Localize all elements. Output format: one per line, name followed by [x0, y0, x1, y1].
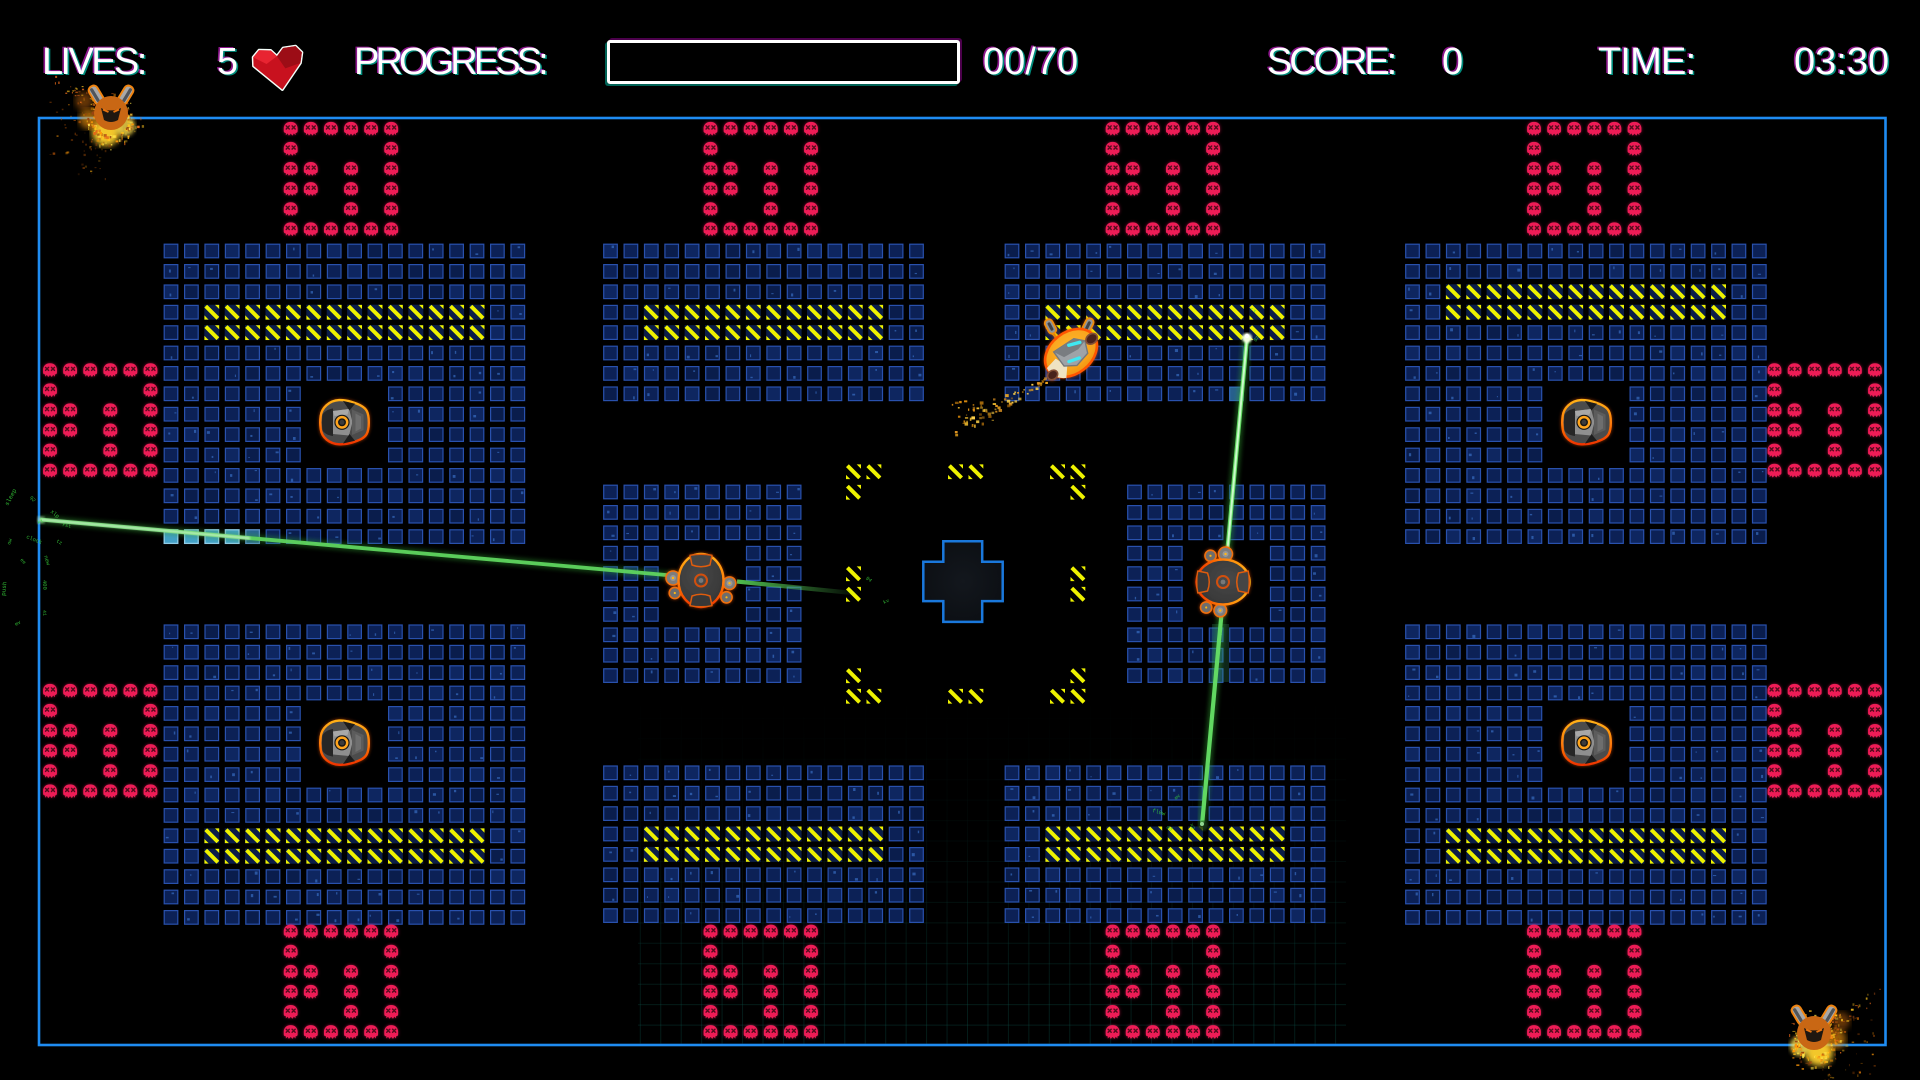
svg-text:g4: g4 — [865, 575, 873, 583]
svg-text:41: 41 — [41, 610, 47, 616]
svg-text:clock: clock — [25, 533, 44, 546]
svg-text:ee: ee — [19, 557, 27, 565]
svg-text:kv: kv — [882, 598, 890, 606]
svg-text:mv: mv — [14, 620, 22, 628]
svg-text:ow: ow — [6, 538, 14, 546]
svg-text:push: push — [0, 581, 9, 596]
svg-text:tz: tz — [55, 538, 63, 546]
svg-text:new: new — [42, 554, 52, 566]
svg-text:q2: q2 — [28, 495, 36, 503]
svg-text:400: 400 — [41, 580, 48, 590]
svg-text:sleep: sleep — [4, 487, 19, 507]
svg-text:rst: rst — [62, 522, 72, 530]
